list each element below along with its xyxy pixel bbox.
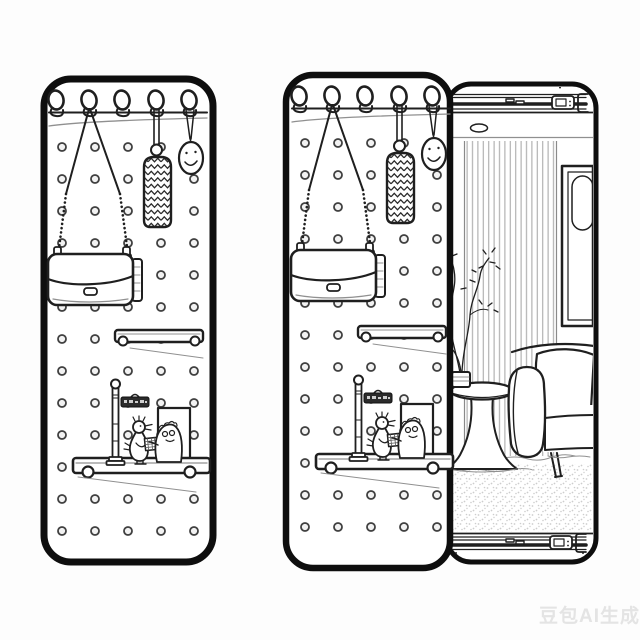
cabinet-room-view	[429, 84, 596, 562]
vase	[452, 372, 470, 387]
pegboard-panel-right	[286, 75, 453, 568]
pegboard-panel-left	[44, 79, 213, 562]
ai-watermark: 豆包AI生成	[536, 601, 640, 627]
pegboard-contents-right	[290, 85, 453, 541]
pegboard-contents-left	[47, 89, 210, 545]
wall-detail-oval	[471, 124, 488, 132]
illustration-canvas	[0, 0, 640, 640]
wall-art-frame	[562, 166, 593, 326]
